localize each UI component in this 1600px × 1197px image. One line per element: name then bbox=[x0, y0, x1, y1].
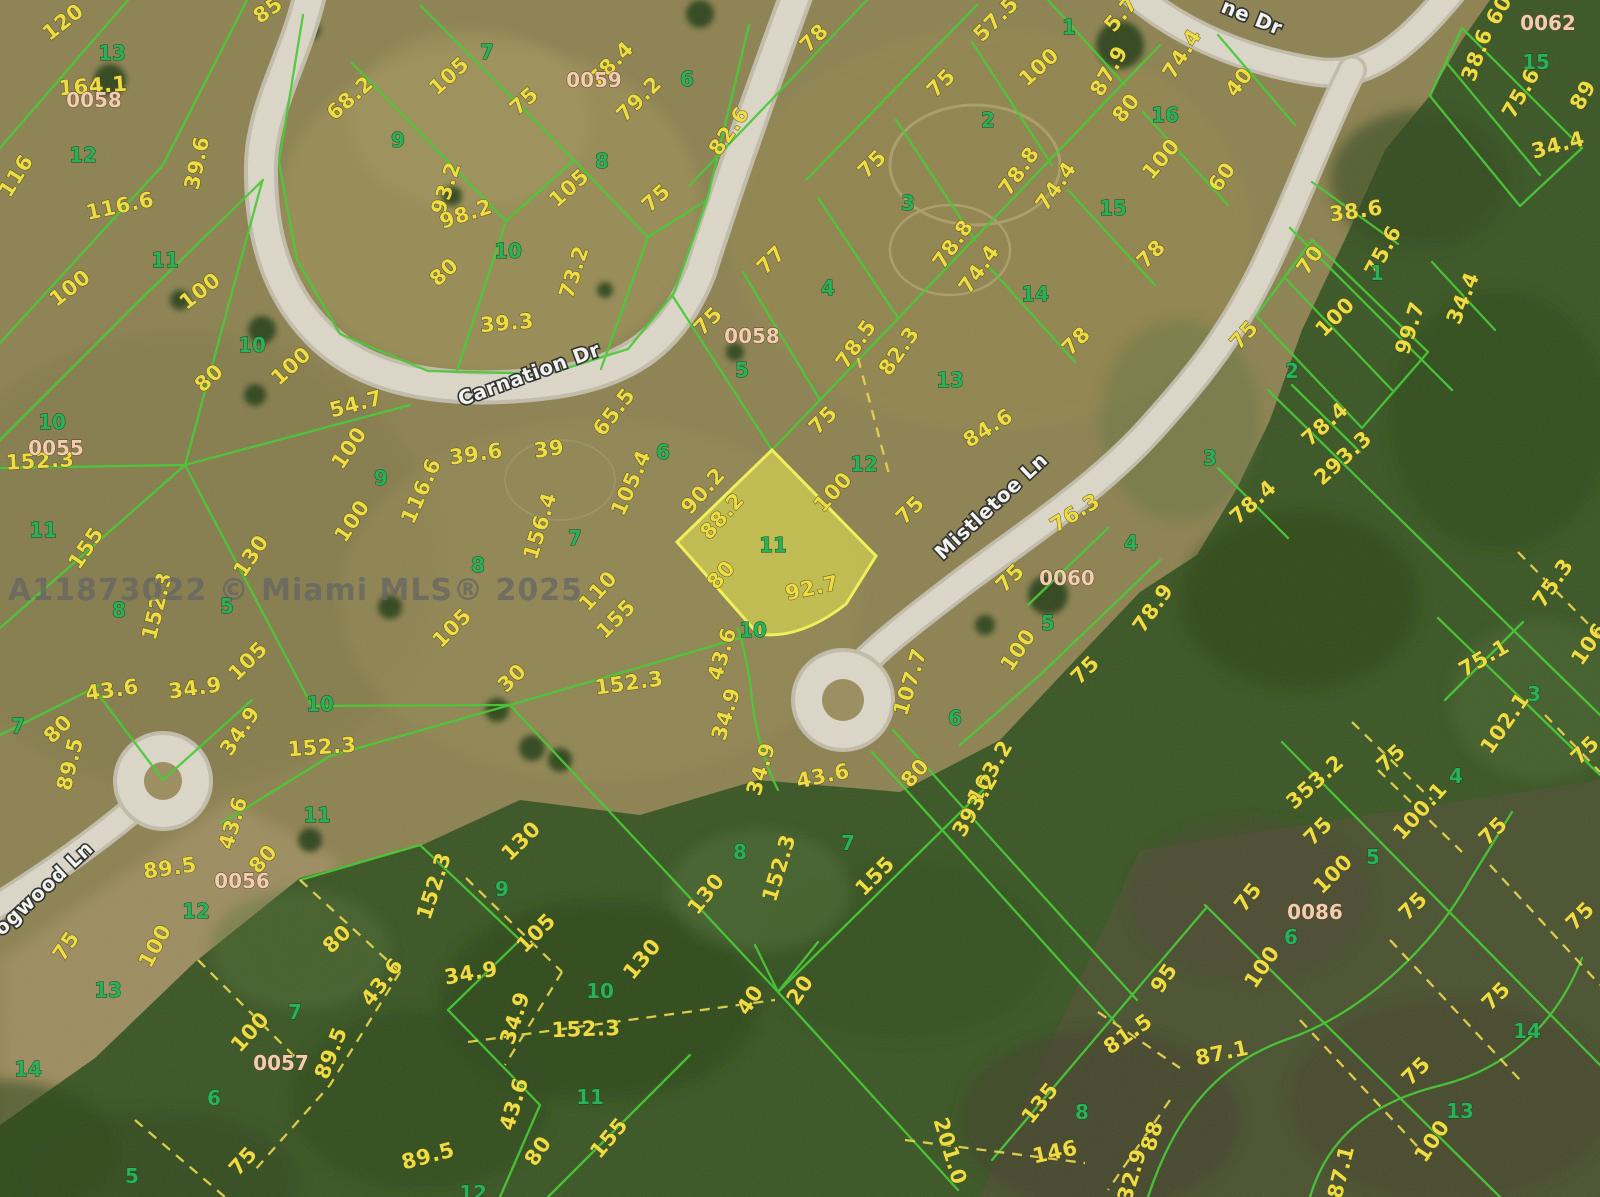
parcel-map-canvas: 120164.1116116.639.6100100801008568.2105… bbox=[0, 0, 1600, 1197]
mls-aerial-parcel-map: 120164.1116116.639.6100100801008568.2105… bbox=[0, 0, 1600, 1197]
photo-grain-overlay bbox=[0, 0, 1600, 1197]
